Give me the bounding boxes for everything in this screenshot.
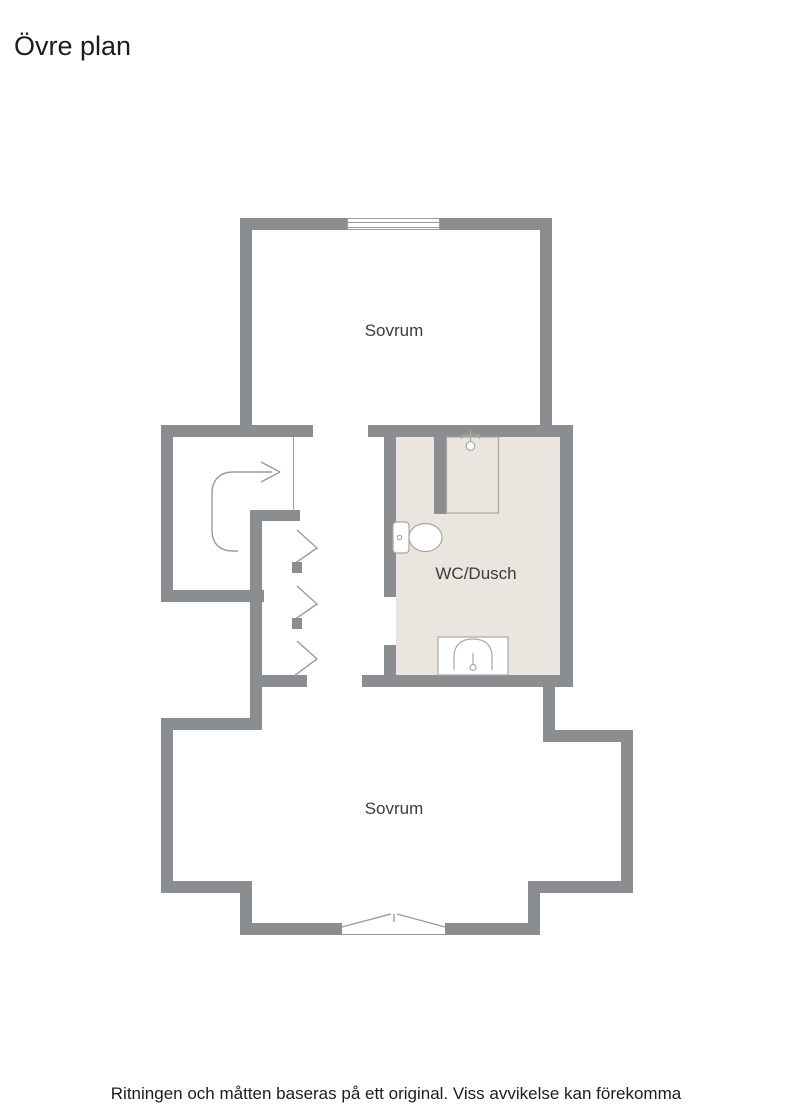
wardrobe-door-pivot (292, 618, 302, 629)
stair-arrow-icon (212, 462, 280, 551)
wall-segment (240, 218, 347, 230)
wall-segment (161, 881, 252, 893)
room-label-bedroom-bottom: Sovrum (344, 800, 444, 818)
wall-segment-shower-divider (434, 437, 446, 514)
wall-segment (440, 218, 552, 230)
wardrobe-door-chevron (294, 641, 317, 676)
wardrobe-doors-symbol (292, 530, 317, 676)
wall-segment (161, 425, 173, 602)
wall-segment (161, 425, 313, 437)
wall-segment (258, 675, 307, 687)
wall-segment (362, 675, 573, 687)
wall-segment (560, 425, 573, 687)
floor-plan-drawing (0, 0, 792, 1120)
room-label-bathroom: WC/Dusch (416, 565, 536, 583)
toilet-bowl (409, 524, 442, 552)
window-opening (347, 218, 440, 230)
wall-segment (161, 718, 258, 730)
toilet-icon (393, 522, 442, 553)
toilet-flush-button (397, 535, 401, 539)
walls-stair-hall (161, 425, 313, 730)
wall-segment (543, 687, 555, 742)
opening-leaf-right (397, 914, 445, 927)
wall-segment (445, 923, 540, 935)
opening-leaf-left (342, 914, 391, 927)
wardrobe-door-chevron (294, 530, 317, 564)
wall-segment (250, 510, 300, 521)
sink-icon (438, 637, 508, 675)
wall-segment (540, 218, 552, 425)
shower-head (466, 442, 475, 451)
wall-segment (240, 218, 252, 430)
room-label-bedroom-top: Sovrum (344, 322, 444, 340)
wall-segment (543, 730, 633, 742)
wardrobe-door-chevron (294, 586, 317, 620)
sink-drain (470, 665, 476, 671)
wall-segment (240, 923, 342, 935)
floorplan-page: Övre plan (0, 0, 792, 1120)
wall-segment (161, 718, 173, 893)
disclaimer-text: Ritningen och måtten baseras på ett orig… (0, 1084, 792, 1104)
window-top (347, 218, 440, 230)
wall-segment (621, 742, 633, 893)
wall-segment (528, 881, 633, 893)
bottom-opening-symbol (342, 914, 445, 935)
wardrobe-door-pivot (292, 562, 302, 573)
wall-segment (384, 437, 396, 597)
wall-segment (161, 590, 264, 602)
wall-segment (250, 510, 262, 730)
